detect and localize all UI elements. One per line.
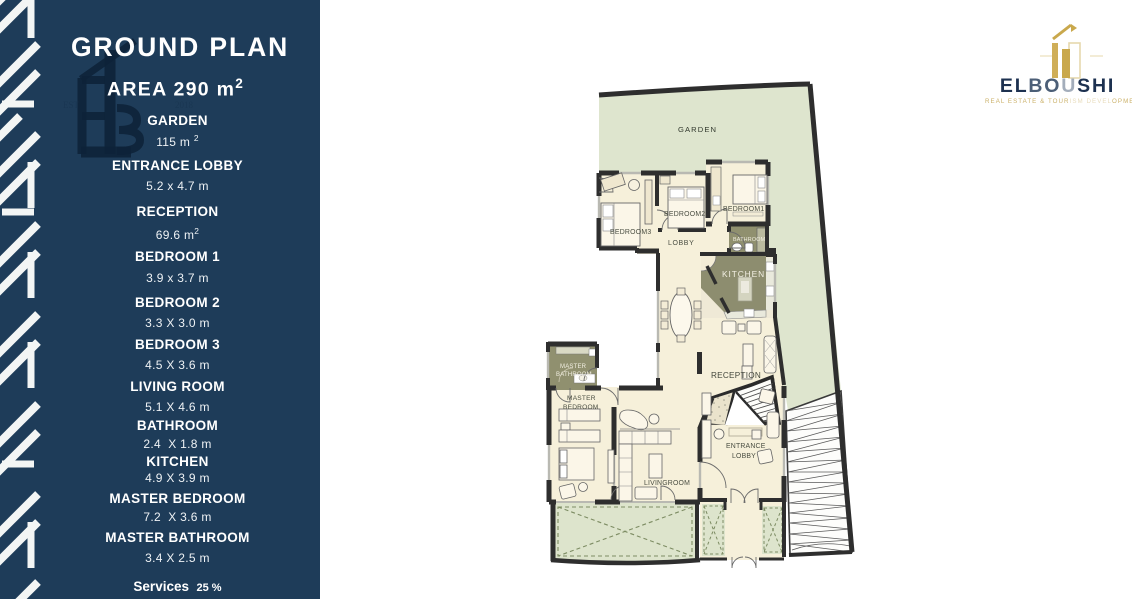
svg-text:LOBBY: LOBBY — [668, 240, 694, 247]
svg-text:MASTER: MASTER — [560, 364, 587, 370]
svg-text:MASTER: MASTER — [567, 395, 596, 402]
svg-text:ENTRANCE: ENTRANCE — [726, 443, 766, 450]
svg-text:BATHROOM: BATHROOM — [556, 372, 592, 378]
svg-text:BEDROOM3: BEDROOM3 — [610, 229, 651, 236]
svg-text:BEDROOM1: BEDROOM1 — [723, 206, 764, 213]
svg-text:LOBBY: LOBBY — [732, 453, 756, 460]
svg-text:LIVINGROOM: LIVINGROOM — [644, 480, 690, 487]
svg-text:BEDROOM2: BEDROOM2 — [664, 211, 705, 218]
svg-text:GARDEN: GARDEN — [678, 125, 717, 134]
svg-text:BEDROOM: BEDROOM — [563, 404, 598, 411]
svg-text:BATHROOM: BATHROOM — [733, 237, 766, 243]
svg-text:KITCHEN: KITCHEN — [722, 269, 765, 279]
svg-text:RECEPTION: RECEPTION — [711, 371, 761, 380]
